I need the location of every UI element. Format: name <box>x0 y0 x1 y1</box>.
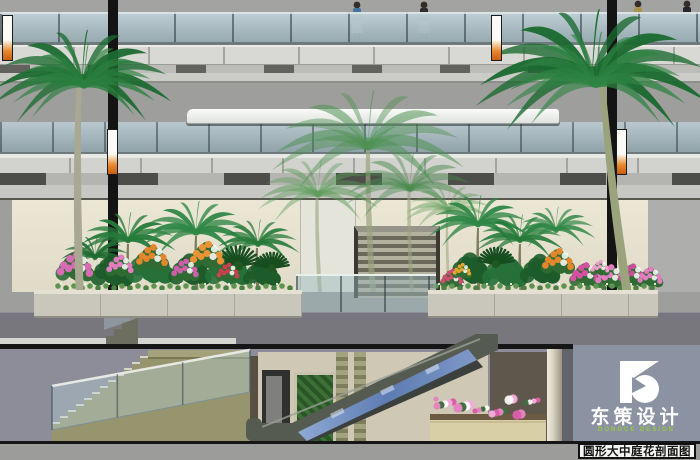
drawing-title: 圆形大中庭花剖面图 <box>583 443 691 459</box>
hanging-banner-3 <box>107 129 118 175</box>
basement-storefront <box>152 388 182 441</box>
basement-wall-brown-right <box>490 352 547 441</box>
planter-left <box>34 290 302 318</box>
glass-railing-top <box>0 12 700 45</box>
basement-door-leaf <box>266 376 282 441</box>
basement-edge-wall <box>562 349 573 441</box>
floor-fascia-2 <box>0 158 700 173</box>
basement-wall-beige <box>258 352 488 441</box>
hanging-banner-1 <box>2 15 13 61</box>
planter-right <box>428 290 658 318</box>
signage-band-2 <box>0 173 700 185</box>
hanging-banner-4 <box>616 129 627 175</box>
basement-column <box>547 349 562 441</box>
company-name: 东策设计 <box>573 402 700 429</box>
green-wall-panel <box>294 372 336 447</box>
basement-wall-brown-left <box>180 356 258 441</box>
hanging-banner-2 <box>491 15 502 61</box>
palm-trunk-basement-1 <box>336 352 348 441</box>
section-drawing: 东策设计 DONGCE DESIGN 圆形大中庭花剖面图 <box>0 0 700 460</box>
basement-ceiling-line <box>0 344 573 349</box>
palm-trunk-basement-2 <box>354 352 366 441</box>
upper-floor-wall <box>0 0 700 12</box>
company-name-en: DONGCE DESIGN <box>573 427 700 433</box>
signage-band-1 <box>0 65 700 73</box>
floor-ledge-1 <box>0 73 700 83</box>
travelator-handrail <box>186 108 560 124</box>
floor-fascia-1 <box>0 47 700 65</box>
left-wall-cut <box>0 200 12 292</box>
dongce-logo-icon <box>573 353 700 409</box>
glass-balustrade-ground <box>296 274 436 312</box>
drawing-title-box: 圆形大中庭花剖面图 <box>578 443 696 459</box>
floor-ledge-2 <box>0 185 700 200</box>
glass-railing-mid <box>0 122 700 154</box>
design-firm-panel: 东策设计 DONGCE DESIGN <box>573 345 700 441</box>
right-wall-cut <box>648 200 700 292</box>
